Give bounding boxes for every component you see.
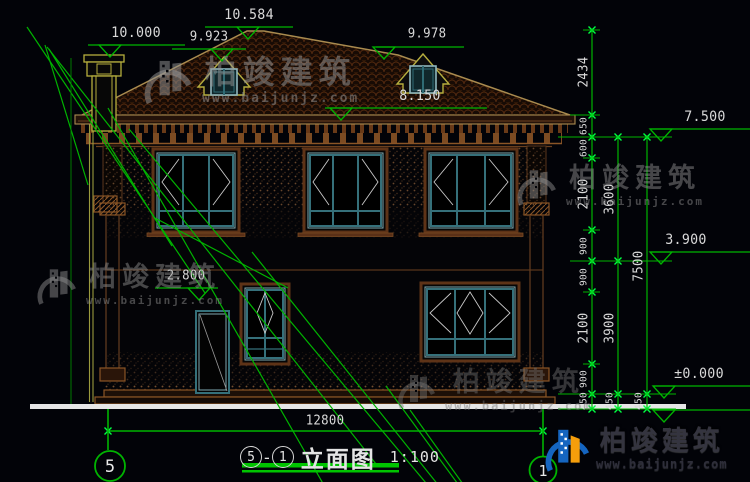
dim-3600: 3600 [603,184,618,215]
axis-label-5: 5 [105,457,115,477]
bracket-row [86,133,562,143]
plinth [95,384,555,404]
dim-900-b: 900 [579,268,590,286]
brand-logo-icon [540,423,590,475]
marker-floor2: 3.900 [665,232,706,248]
dim-600: 600 [579,139,590,157]
marker-zero: ±0.000 [674,366,724,382]
dentil-row [80,125,568,134]
marker-wall-top: 7.500 [684,109,725,125]
title-name: 立面图 [301,440,376,474]
drawing-title: 5 - 1 立面图 1:100 [240,440,440,474]
dim-3900: 3900 [603,313,618,344]
building-elevation [30,31,686,409]
dim-12800: 12800 [306,414,345,429]
title-scale: 1:100 [390,448,440,466]
dim-450-outer: 450 [634,392,645,410]
rain-hopper [94,196,117,212]
marker-ridge: 10.584 [224,7,274,23]
door [196,311,229,393]
brand-url: www.baijunjz.com [596,458,728,470]
eave-fascia [75,115,575,124]
brand-name: 柏竣建筑 [600,428,724,455]
dim-650: 650 [579,117,590,135]
marker-door-top: 2.800 [167,269,206,284]
marker-dormer-left: 9.923 [190,30,229,45]
marker-eave: 8.150 [399,88,440,104]
title-bubble-left: 5 [240,446,262,468]
dim-2100-lower: 2100 [577,313,592,344]
cad-canvas: 10.584 10.000 9.923 9.978 8.150 2.800 7.… [0,0,750,482]
dim-900-a: 900 [579,237,590,255]
title-dash: - [264,448,270,467]
dim-450-mid: 450 [605,392,616,410]
dim-450-inner: 450 [579,392,590,410]
dim-2434: 2434 [577,57,592,88]
dim-7500: 7500 [632,251,647,282]
dim-2100-upper: 2100 [577,179,592,210]
brand-logo: 柏竣建筑 www.baijunjz.com [540,423,728,475]
marker-chimney: 10.000 [111,25,161,41]
dim-900-c: 900 [579,370,590,388]
marker-dormer-right: 9.978 [408,27,447,42]
title-bubble-right: 1 [272,446,294,468]
